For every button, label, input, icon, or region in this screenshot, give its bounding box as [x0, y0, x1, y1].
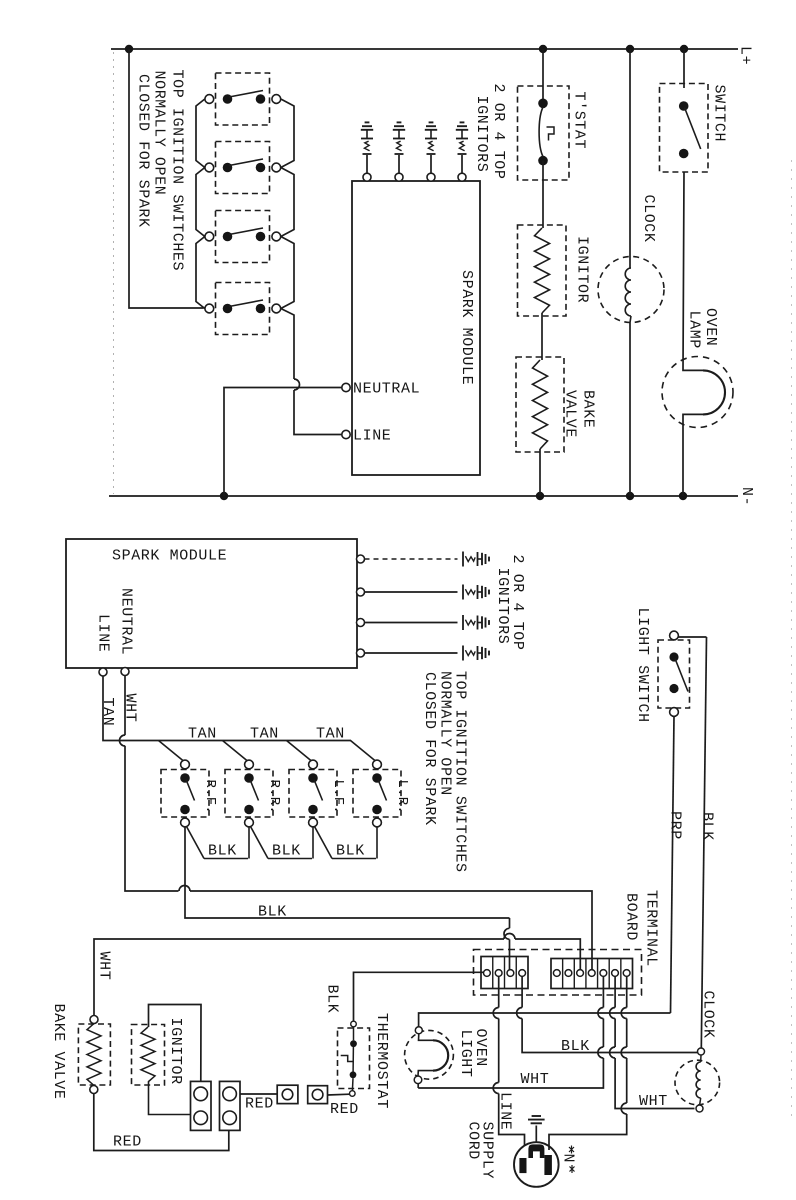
- svg-text:L.R.: L.R.: [394, 780, 410, 814]
- svg-text:BLK: BLK: [258, 904, 287, 921]
- svg-text:LIGHT: LIGHT: [457, 1030, 474, 1078]
- svg-text:CLOSED FOR SPARK: CLOSED FOR SPARK: [421, 672, 438, 826]
- svg-text:R.F.: R.F.: [202, 780, 218, 814]
- svg-text:CORD: CORD: [465, 1122, 482, 1160]
- svg-text:T'STAT: T'STAT: [571, 92, 588, 150]
- svg-text:TAN: TAN: [316, 726, 345, 743]
- svg-text:VALVE: VALVE: [562, 390, 579, 438]
- svg-text:LINE: LINE: [95, 614, 112, 652]
- svg-text:IGNITORS: IGNITORS: [494, 568, 511, 645]
- svg-text:2 OR 4 TOP: 2 OR 4 TOP: [490, 84, 507, 180]
- svg-text:BLK: BLK: [272, 843, 301, 860]
- svg-text:PRP: PRP: [667, 811, 684, 840]
- svg-text:OVEN: OVEN: [702, 308, 719, 346]
- svg-text:WHT: WHT: [639, 1093, 668, 1110]
- svg-text:WHT: WHT: [521, 1071, 550, 1088]
- svg-text:TOP IGNITION SWITCHES: TOP IGNITION SWITCHES: [169, 70, 186, 272]
- svg-text:IGNITORS: IGNITORS: [473, 96, 490, 173]
- svg-text:WHT: WHT: [96, 952, 113, 981]
- svg-text:BAKE VALVE: BAKE VALVE: [50, 1004, 67, 1100]
- svg-text:IGNITOR: IGNITOR: [167, 1018, 184, 1085]
- svg-text:BLK: BLK: [336, 843, 365, 860]
- svg-text:N-: N-: [738, 487, 755, 506]
- svg-text:R.R.: R.R.: [266, 780, 282, 814]
- svg-text:IGNITOR: IGNITOR: [574, 236, 591, 303]
- svg-text:BLK: BLK: [208, 843, 237, 860]
- svg-text:BLK: BLK: [561, 1038, 590, 1055]
- svg-text:RED: RED: [245, 1096, 274, 1113]
- svg-text:WHT: WHT: [122, 694, 139, 723]
- svg-text:LIGHT SWITCH: LIGHT SWITCH: [634, 608, 651, 723]
- svg-text:CLOSED FOR SPARK: CLOSED FOR SPARK: [135, 74, 152, 228]
- svg-text:LAMP: LAMP: [686, 311, 703, 349]
- svg-text:NORMALLY OPEN: NORMALLY OPEN: [437, 671, 454, 796]
- svg-text:SWITCH: SWITCH: [711, 85, 728, 143]
- svg-text:CLOCK: CLOCK: [700, 991, 717, 1039]
- svg-text:NEUTRAL: NEUTRAL: [118, 588, 135, 655]
- svg-text:NEUTRAL: NEUTRAL: [353, 381, 420, 398]
- svg-text:BLK: BLK: [324, 985, 341, 1014]
- svg-text:BAKE: BAKE: [580, 390, 597, 428]
- svg-text:TAN: TAN: [250, 726, 279, 743]
- svg-text:BOARD: BOARD: [623, 893, 640, 941]
- svg-text:TERMINAL: TERMINAL: [643, 890, 660, 967]
- svg-text:NORMALLY OPEN: NORMALLY OPEN: [151, 71, 168, 196]
- svg-text:L.F.: L.F.: [330, 780, 346, 814]
- svg-text:TAN: TAN: [99, 698, 116, 727]
- svg-text:SPARK MODULE: SPARK MODULE: [112, 548, 227, 565]
- svg-text:L+: L+: [737, 46, 754, 65]
- svg-text:THERMOSTAT: THERMOSTAT: [373, 1013, 390, 1109]
- svg-text:TAN: TAN: [188, 726, 217, 743]
- svg-text:CLOCK: CLOCK: [640, 195, 657, 243]
- svg-text:SPARK MODULE: SPARK MODULE: [458, 270, 475, 385]
- svg-text:RED: RED: [113, 1134, 142, 1151]
- svg-text:RED: RED: [330, 1101, 359, 1118]
- svg-text:N: N: [560, 1154, 577, 1164]
- svg-text:LINE: LINE: [353, 428, 391, 445]
- svg-text:BLK: BLK: [699, 812, 716, 841]
- svg-text:LINE: LINE: [497, 1092, 514, 1130]
